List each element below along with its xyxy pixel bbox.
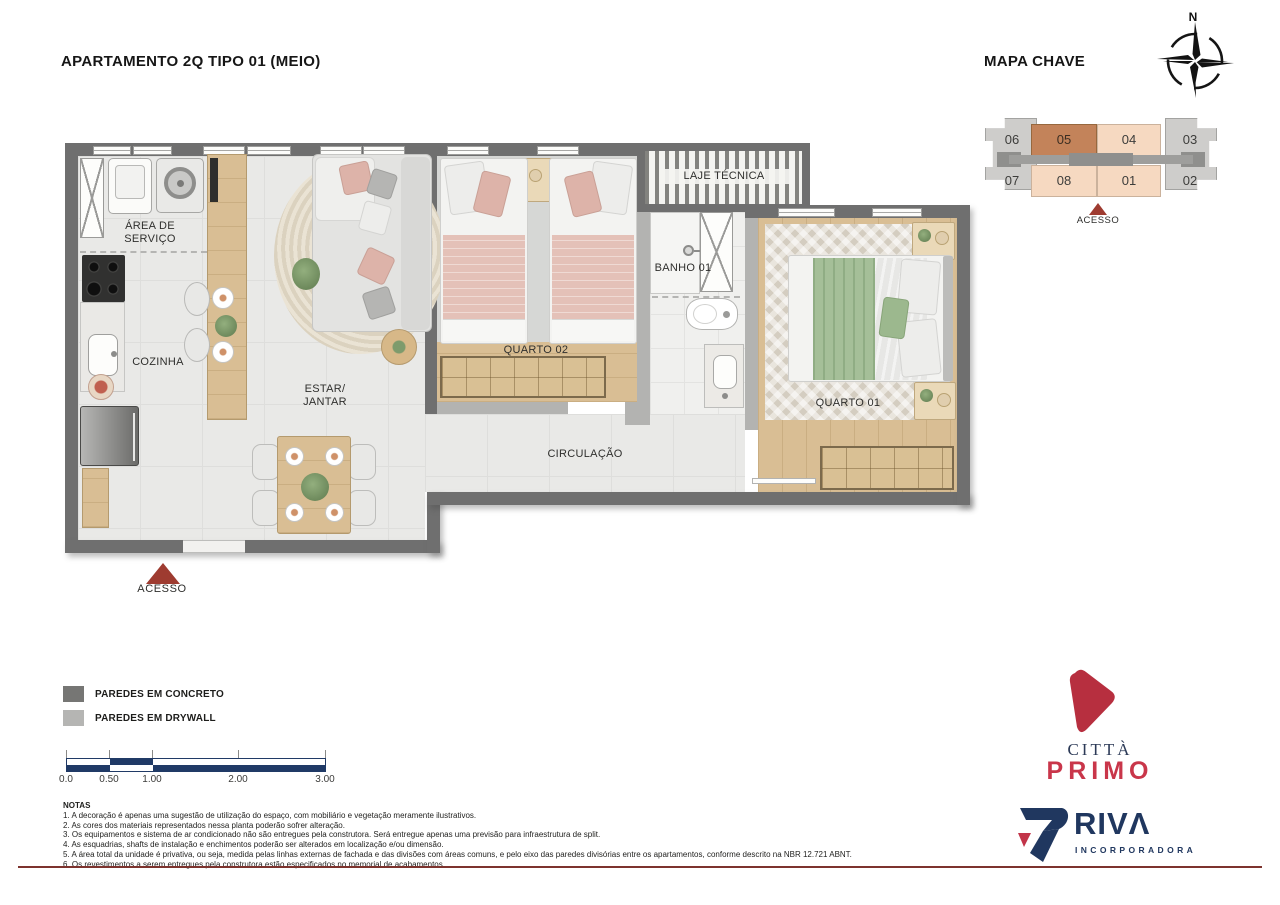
nightstand [914,382,956,420]
shower [650,212,700,294]
plant [292,258,320,290]
access-arrow [146,560,180,584]
dining-table [277,436,351,534]
scale-tick-label: 3.00 [310,774,340,785]
sofa-pillow [356,246,396,286]
sofa-pillow [361,285,396,320]
riva-subtitle: INCORPORADORA [1075,845,1196,855]
room-label-cozinha: COZINHA [118,356,198,369]
dining-chair [348,490,376,526]
plate [212,341,234,363]
drywall-dashed-divider [80,251,207,253]
plate [325,503,344,522]
single-bed [549,158,637,344]
scale-bar: 0.0 0.50 1.00 2.00 3.00 [66,750,328,786]
scale-tick-label: 2.00 [223,774,253,785]
room-label-quarto02: QUARTO 02 [488,344,584,357]
wardrobe [440,356,606,398]
sofa [312,154,432,332]
serving-plate [88,374,114,400]
wardrobe [820,446,954,490]
wall-concrete-left [65,143,78,553]
stove-cooktop [82,255,125,302]
wall-drywall-bath-left [637,212,650,425]
footer-rule [18,866,1262,868]
primo-wordmark: PRIMO [1040,757,1160,786]
duct-shaft [700,212,733,292]
plate [285,447,304,466]
legend-swatch-drywall [63,710,84,726]
window [447,146,489,155]
legend-swatch-concrete [63,686,84,702]
window [133,146,172,155]
plate [212,287,234,309]
wall-concrete-right [957,205,970,505]
wall-drywall-pillar [625,402,650,425]
stool [184,328,210,362]
citta-primo-mark-icon [1062,666,1120,740]
room-label-banho01: BANHO 01 [640,262,726,275]
window [93,146,131,155]
door-leaf [752,478,816,484]
note-line: 6. Os revestimentos a serem entregues pe… [63,860,1263,870]
legend-label-concrete: PAREDES EM CONCRETO [95,689,224,700]
access-label: ACESSO [126,583,198,596]
room-label-laje-tecnica: LAJE TÉCNICA [659,169,789,184]
toilet [686,298,738,330]
refrigerator [80,406,139,466]
scale-tick-label: 0.50 [94,774,124,785]
entry-door-opening [183,540,245,553]
riva-mark-icon [1013,804,1071,864]
dining-chair [252,490,280,526]
bathroom-vanity [704,344,744,408]
dining-chair [348,444,376,480]
sofa-pillow [358,200,393,236]
window [872,208,922,217]
wall-concrete-bottom-right [427,492,970,505]
stool [184,282,210,316]
wall-drywall-bath-right [745,218,758,430]
wall-drywall-bedroom2-bottom [437,402,568,414]
laundry-tank [108,158,152,214]
washing-machine [156,158,204,213]
coffee-table [381,329,417,365]
plant [301,473,329,501]
window [778,208,835,217]
plate [325,447,344,466]
plate [285,503,304,522]
double-bed [788,255,952,382]
floorplan-page: APARTAMENTO 2Q TIPO 01 (MEIO) MAPA CHAVE… [0,0,1280,905]
scale-tick-label: 0.0 [51,774,81,785]
room-label-quarto01: QUARTO 01 [790,397,906,410]
window [537,146,579,155]
wall-concrete-bottom-left [65,540,440,553]
scale-tick-label: 1.00 [137,774,167,785]
duct-shaft [80,158,104,238]
entry-console [82,468,109,528]
plant [215,315,237,337]
kitchen-sink [88,334,118,376]
legend-label-drywall: PAREDES EM DRYWALL [95,713,216,724]
room-label-area-servico: ÁREA DE SERVIÇO [110,220,190,246]
single-bed [440,158,528,344]
room-label-circulacao: CIRCULAÇÃO [533,448,637,461]
dining-chair [252,444,280,480]
tv-panel [210,158,218,202]
window [247,146,291,155]
room-label-estar-jantar: ESTAR/ JANTAR [286,383,364,409]
riva-wordmark: RIVΛ [1074,806,1150,842]
